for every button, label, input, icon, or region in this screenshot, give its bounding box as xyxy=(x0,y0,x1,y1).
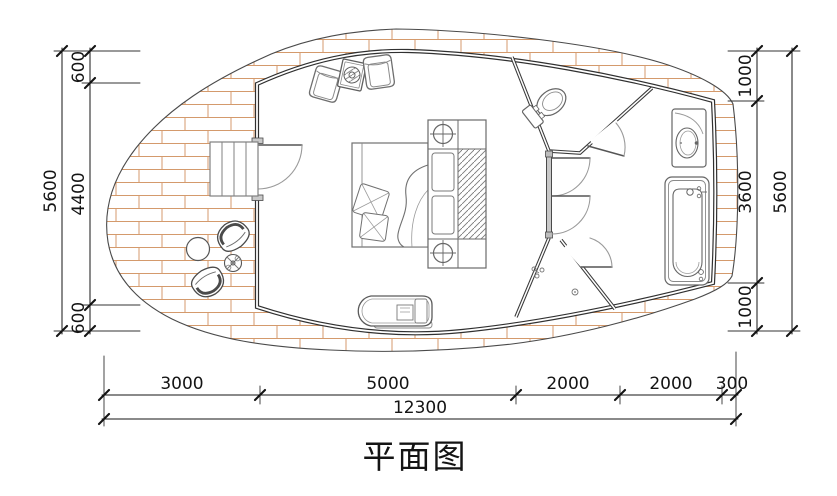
dim-right-seg-1: 3600 xyxy=(736,170,756,213)
wall-jamb-cap xyxy=(546,232,553,238)
dim-bottom-seg-0: 3000 xyxy=(160,374,203,394)
drawing-title: 平面图 xyxy=(363,437,468,476)
dim-bottom-overall: 12300 xyxy=(393,398,447,418)
dim-right-seg-0: 1000 xyxy=(736,54,756,97)
wardrobe xyxy=(428,120,486,268)
bed xyxy=(352,143,428,247)
floor-plan-page: 600 4400 600 5600 1000 3600 1000 5600 30… xyxy=(0,0,837,496)
coffee-table xyxy=(337,59,366,91)
wardrobe-drawer xyxy=(432,196,454,234)
vanity-sink xyxy=(672,109,706,167)
dim-bottom-seg-3: 2000 xyxy=(649,374,692,394)
wardrobe-hanging-rail xyxy=(459,150,486,239)
tap-icon xyxy=(695,141,699,145)
dim-right-overall: 5600 xyxy=(771,170,791,213)
wall-jamb-cap xyxy=(546,151,553,157)
dim-left-seg-2: 600 xyxy=(69,302,89,334)
bathtub xyxy=(665,177,709,285)
deck-table xyxy=(187,238,210,261)
plant-pot-icon xyxy=(225,255,242,272)
dim-left-seg-0: 600 xyxy=(69,51,89,83)
wardrobe-drawer xyxy=(432,153,454,191)
armchair-right xyxy=(363,54,395,90)
central-partition-wall xyxy=(547,153,552,236)
dim-right-seg-2: 1000 xyxy=(736,285,756,328)
entrance-stairs xyxy=(210,142,258,196)
dim-bottom-seg-4: 300 xyxy=(716,374,748,394)
dim-bottom-seg-2: 2000 xyxy=(546,374,589,394)
dim-left-seg-1: 4400 xyxy=(69,172,89,215)
chaise-lounge xyxy=(358,296,432,328)
dim-left-overall: 5600 xyxy=(41,169,61,212)
bed-pillow xyxy=(359,212,388,241)
dim-bottom-seg-1: 5000 xyxy=(366,374,409,394)
floor-plan-svg: 600 4400 600 5600 1000 3600 1000 5600 30… xyxy=(0,0,837,496)
